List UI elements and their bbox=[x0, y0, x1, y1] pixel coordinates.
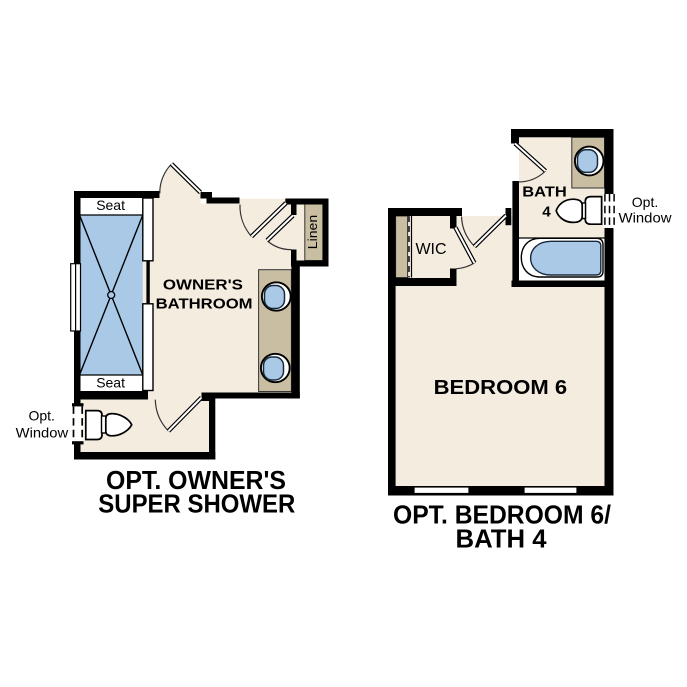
svg-text:SUPER SHOWER: SUPER SHOWER bbox=[98, 489, 295, 519]
svg-text:BATH: BATH bbox=[522, 184, 567, 201]
svg-text:Opt.: Opt. bbox=[28, 408, 54, 424]
svg-text:BEDROOM 6: BEDROOM 6 bbox=[434, 377, 568, 399]
svg-text:Opt.: Opt. bbox=[632, 194, 658, 210]
svg-text:Linen: Linen bbox=[305, 215, 320, 250]
svg-text:Window: Window bbox=[16, 424, 69, 440]
svg-text:OWNER'S: OWNER'S bbox=[163, 277, 243, 293]
svg-text:Window: Window bbox=[619, 210, 673, 226]
svg-text:Seat: Seat bbox=[96, 197, 125, 213]
svg-text:WIC: WIC bbox=[415, 241, 446, 258]
svg-text:BATH 4: BATH 4 bbox=[456, 524, 548, 554]
svg-text:BATHROOM: BATHROOM bbox=[156, 297, 253, 313]
svg-text:4: 4 bbox=[542, 204, 551, 221]
svg-text:Seat: Seat bbox=[96, 375, 125, 391]
